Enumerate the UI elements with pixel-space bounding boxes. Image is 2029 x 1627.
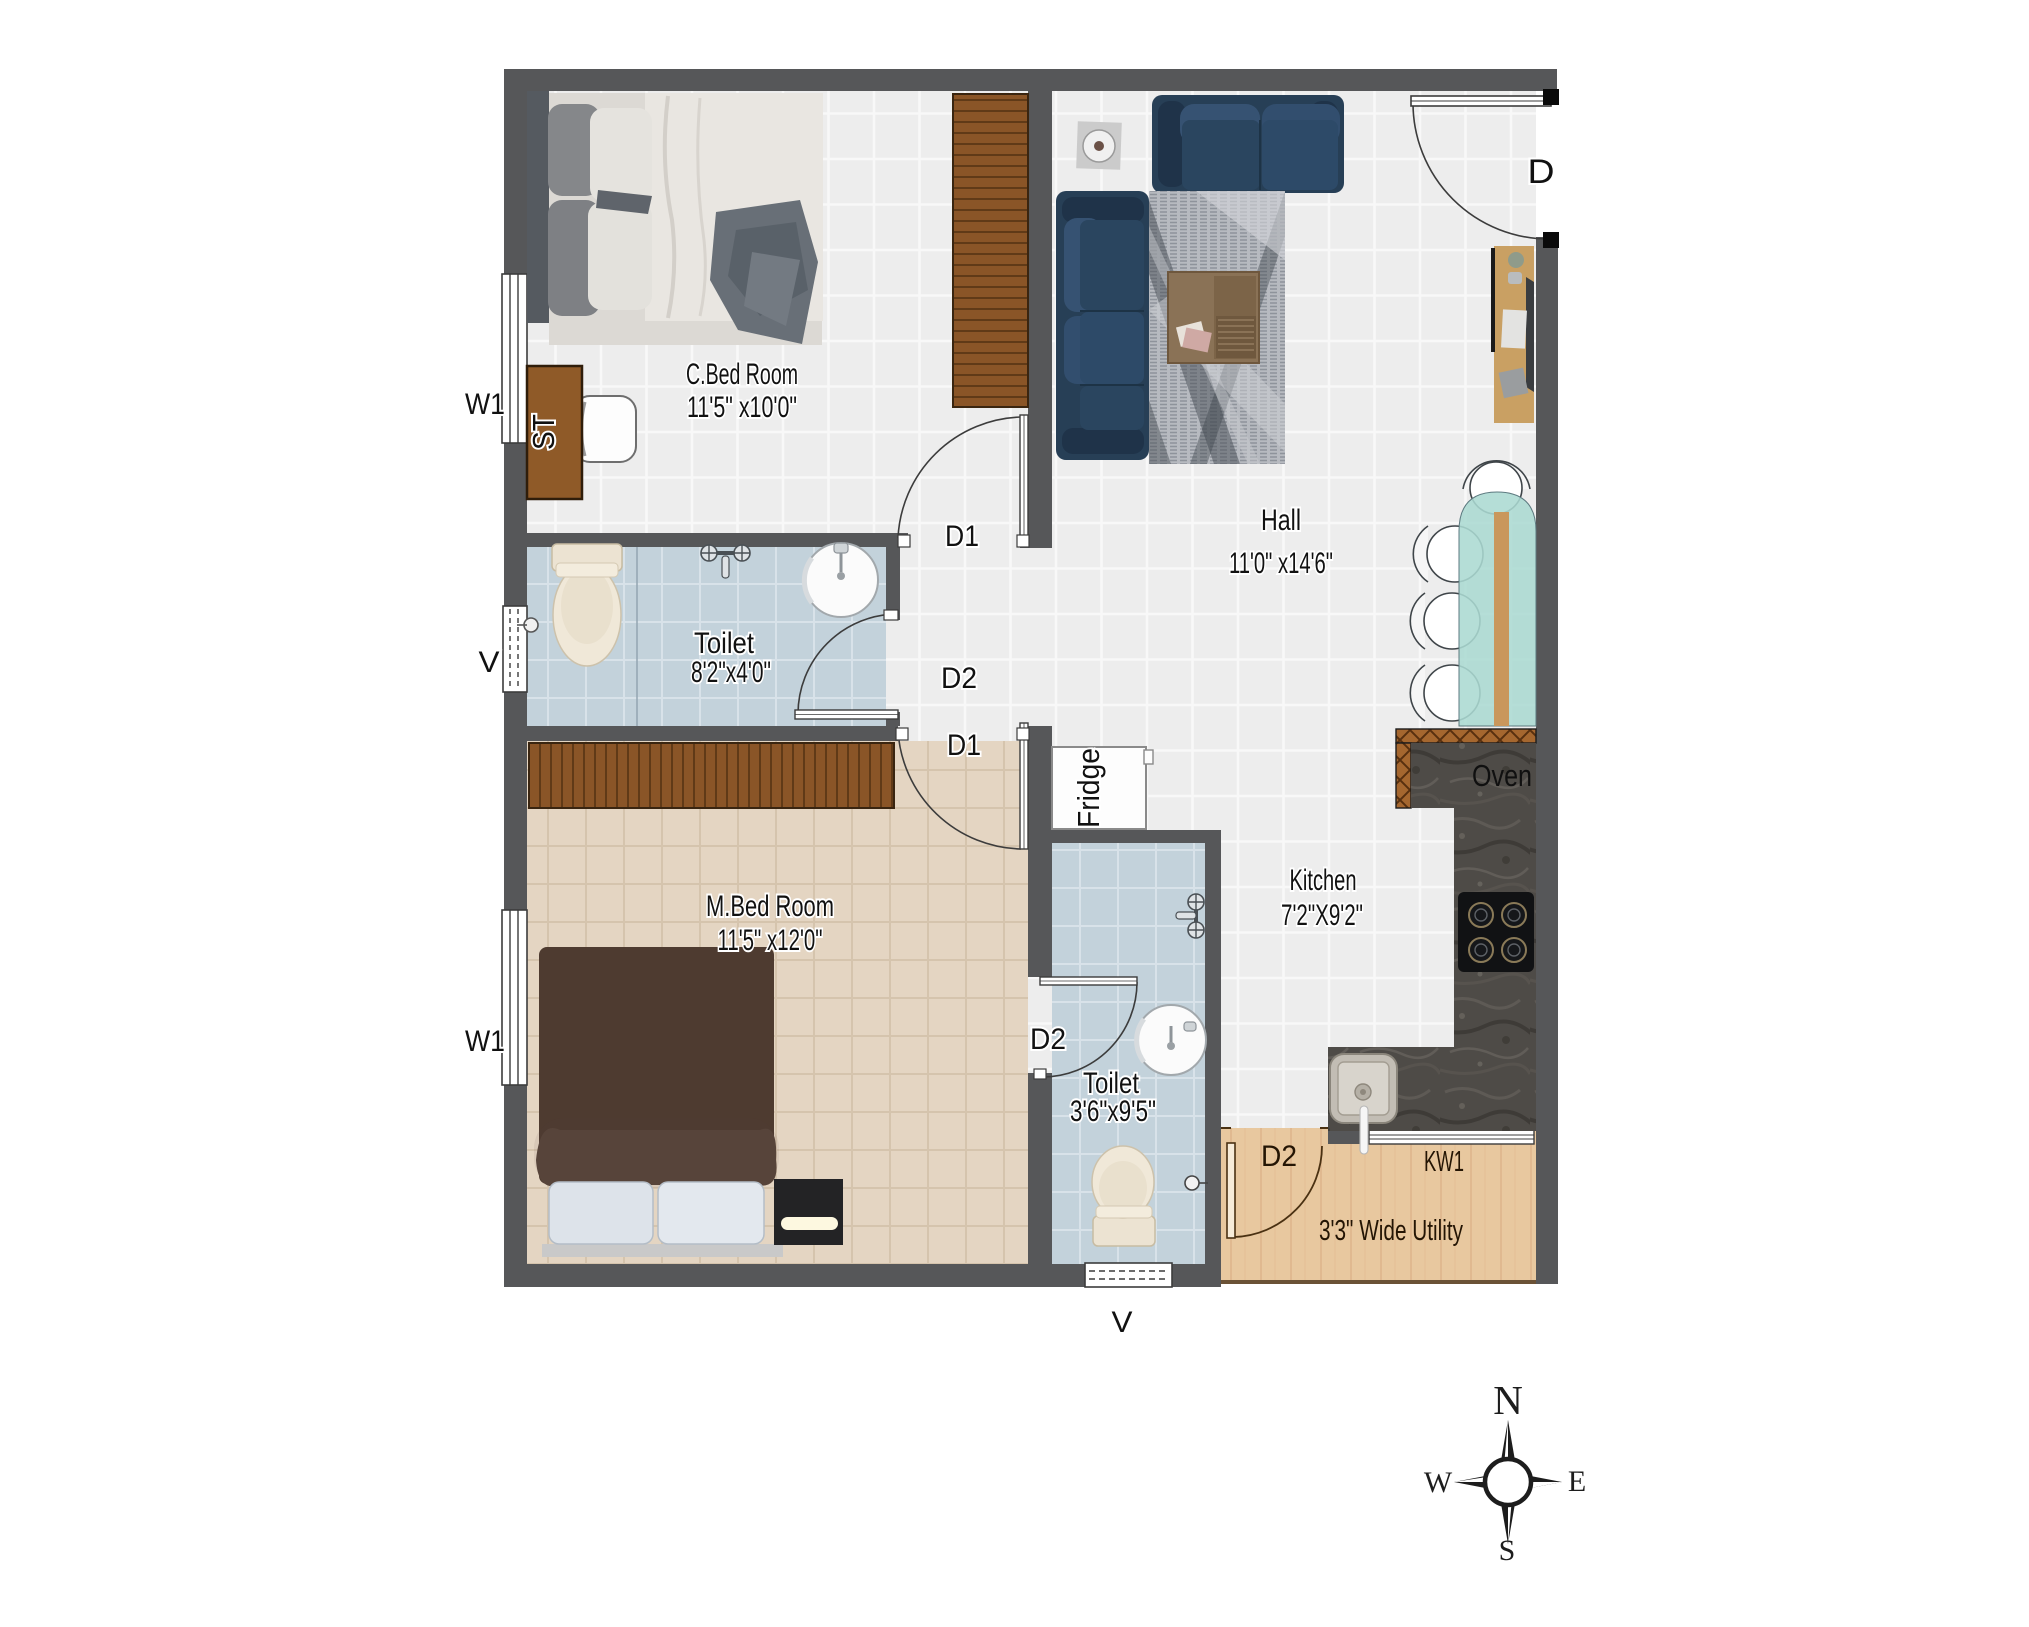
- svg-text:D: D: [1528, 153, 1555, 191]
- svg-text:D1: D1: [945, 520, 979, 553]
- svg-text:S: S: [1499, 1534, 1516, 1567]
- svg-text:Hall: Hall: [1261, 504, 1301, 537]
- svg-text:D2: D2: [1030, 1023, 1066, 1056]
- svg-text:V: V: [479, 646, 500, 679]
- svg-text:D2: D2: [1261, 1140, 1297, 1173]
- svg-text:D1: D1: [947, 729, 981, 762]
- svg-text:3'3" Wide Utility: 3'3" Wide Utility: [1319, 1215, 1463, 1247]
- svg-text:8'2"x4'0": 8'2"x4'0": [691, 656, 771, 689]
- svg-text:3'6"x9'5": 3'6"x9'5": [1070, 1095, 1156, 1128]
- svg-text:D2: D2: [941, 662, 977, 695]
- svg-text:M.Bed Room: M.Bed Room: [706, 890, 834, 923]
- svg-text:7'2"X9'2": 7'2"X9'2": [1281, 899, 1363, 932]
- svg-text:V: V: [1112, 1306, 1133, 1339]
- svg-text:W: W: [1424, 1466, 1453, 1499]
- svg-text:ST: ST: [526, 414, 561, 450]
- svg-text:11'5" x12'0": 11'5" x12'0": [718, 924, 823, 957]
- svg-text:Fridge: Fridge: [1071, 748, 1106, 828]
- svg-text:Kitchen: Kitchen: [1290, 864, 1357, 897]
- svg-text:11'5" x10'0": 11'5" x10'0": [687, 391, 797, 424]
- svg-text:W1: W1: [465, 1025, 505, 1058]
- svg-text:N: N: [1493, 1377, 1523, 1423]
- svg-text:11'0" x14'6": 11'0" x14'6": [1229, 547, 1333, 580]
- svg-text:W1: W1: [465, 388, 505, 421]
- svg-text:KW1: KW1: [1424, 1146, 1464, 1178]
- svg-text:Oven: Oven: [1472, 758, 1532, 793]
- svg-text:E: E: [1568, 1465, 1586, 1498]
- svg-text:C.Bed Room: C.Bed Room: [686, 358, 798, 391]
